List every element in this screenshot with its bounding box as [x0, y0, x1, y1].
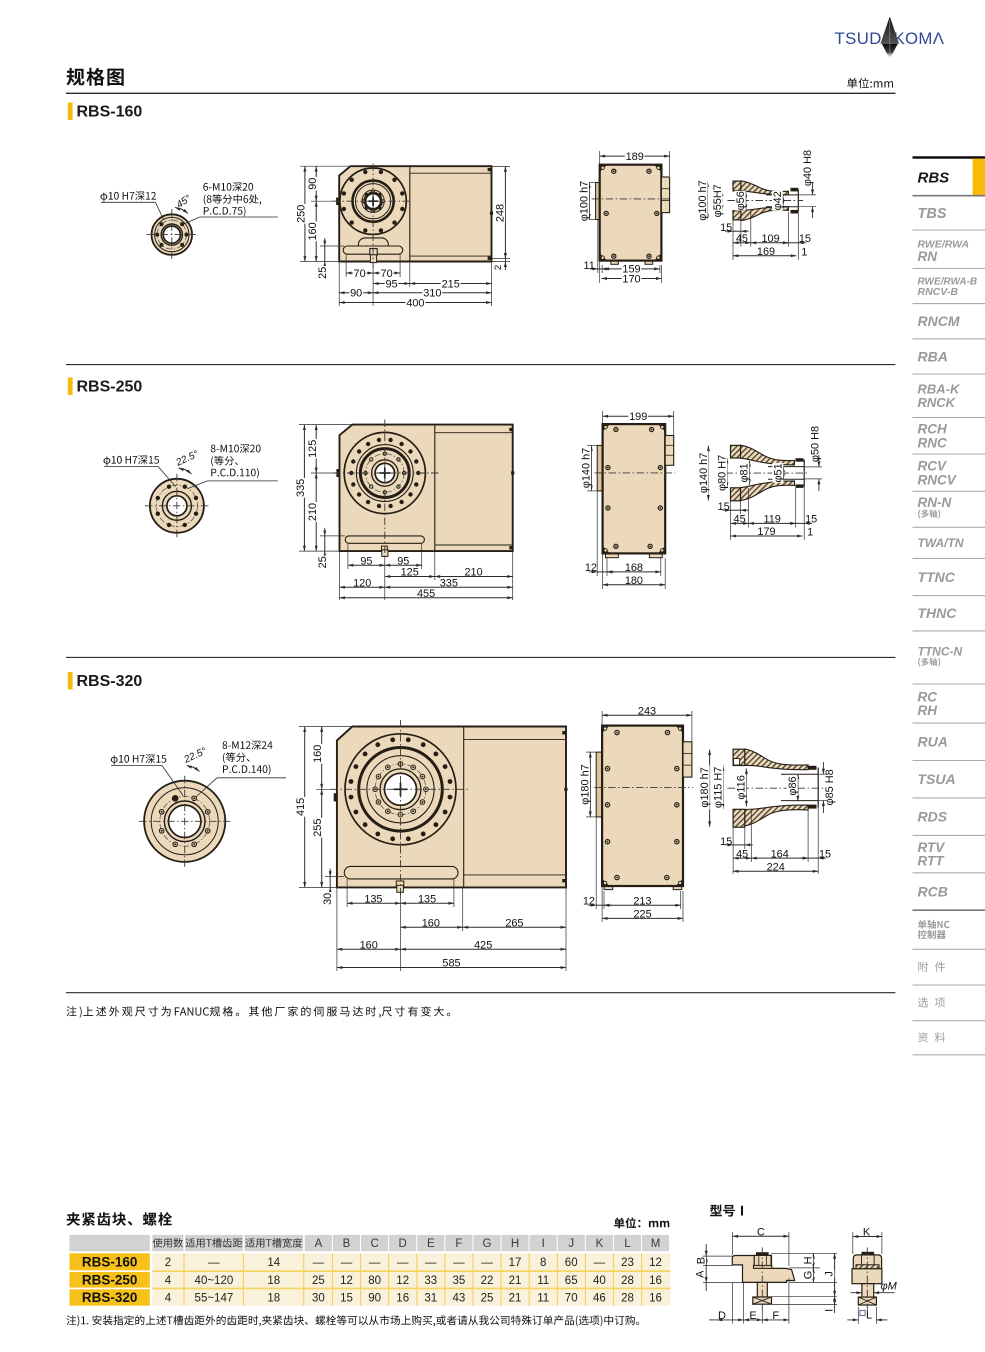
svg-text:RN-N: RN-N [918, 495, 952, 510]
svg-text:RBS: RBS [918, 169, 950, 186]
svg-text:70: 70 [354, 268, 366, 280]
svg-text:G: G [483, 1238, 492, 1250]
svg-text:125: 125 [307, 440, 319, 458]
svg-text:31: 31 [424, 1293, 437, 1305]
svg-text:12: 12 [585, 562, 597, 574]
svg-text:TWA/TN: TWA/TN [918, 536, 964, 550]
svg-text:15: 15 [720, 222, 732, 234]
svg-text:65: 65 [565, 1275, 578, 1287]
svg-text:RNC: RNC [918, 435, 947, 450]
svg-text:L: L [866, 1309, 872, 1321]
svg-text:46: 46 [593, 1293, 606, 1305]
svg-text:210: 210 [307, 503, 319, 521]
svg-text:TBS: TBS [918, 206, 947, 222]
svg-text:RCH: RCH [918, 422, 947, 437]
svg-text:RBS-250: RBS-250 [77, 379, 143, 396]
svg-text:243: 243 [638, 706, 656, 718]
svg-text:22.5°: 22.5° [182, 746, 209, 766]
svg-text:45: 45 [736, 233, 748, 245]
svg-text:125: 125 [401, 567, 419, 579]
svg-text:90: 90 [307, 178, 319, 190]
svg-text:RBA: RBA [918, 348, 948, 364]
svg-text:225: 225 [634, 909, 652, 921]
svg-text:RBS-160: RBS-160 [77, 104, 143, 121]
svg-text:—: — [208, 1257, 220, 1269]
svg-text:21: 21 [509, 1293, 522, 1305]
svg-text:160: 160 [307, 222, 319, 240]
svg-text:16: 16 [649, 1275, 662, 1287]
svg-text:J: J [824, 1271, 836, 1277]
svg-text:—: — [369, 1257, 381, 1269]
svg-text:335: 335 [440, 578, 458, 590]
svg-text:21: 21 [509, 1275, 522, 1287]
svg-text:TTNC-N: TTNC-N [918, 644, 963, 658]
svg-text:265: 265 [505, 917, 523, 929]
svg-text:RTT: RTT [918, 854, 946, 869]
svg-text:—: — [594, 1257, 606, 1269]
svg-text:φ55H7: φ55H7 [712, 184, 724, 217]
svg-text:11: 11 [537, 1293, 549, 1305]
svg-text:11: 11 [584, 260, 595, 272]
svg-text:168: 168 [625, 562, 643, 574]
svg-text:455: 455 [417, 588, 435, 600]
svg-text:K: K [596, 1238, 604, 1250]
svg-text:40~120: 40~120 [195, 1275, 234, 1287]
svg-text:RBS-320: RBS-320 [82, 1290, 138, 1305]
svg-text:RDS: RDS [918, 809, 948, 825]
svg-text:1: 1 [801, 247, 807, 259]
svg-text:180: 180 [625, 575, 643, 587]
svg-text:A: A [315, 1238, 323, 1250]
svg-text:95: 95 [360, 556, 372, 568]
svg-text:23: 23 [621, 1257, 634, 1269]
svg-text:—: — [453, 1257, 465, 1269]
svg-text:KOMΛ: KOMΛ [894, 29, 945, 48]
svg-text:RN: RN [918, 249, 938, 264]
svg-text:H: H [511, 1238, 519, 1250]
svg-text:TSUD: TSUD [835, 29, 882, 48]
svg-text:15: 15 [819, 849, 831, 861]
svg-text:40: 40 [593, 1275, 606, 1287]
svg-text:B: B [343, 1238, 351, 1250]
svg-text:80: 80 [368, 1275, 381, 1287]
svg-text:12: 12 [340, 1275, 353, 1287]
svg-text:RUA: RUA [918, 734, 948, 750]
svg-text:30: 30 [322, 893, 334, 905]
svg-text:45: 45 [734, 514, 746, 526]
svg-text:16: 16 [396, 1293, 409, 1305]
svg-text:THNC: THNC [918, 605, 958, 621]
svg-text:RNCV-B: RNCV-B [918, 286, 959, 298]
svg-text:RCB: RCB [918, 883, 948, 899]
svg-text:109: 109 [762, 233, 780, 245]
svg-text:415: 415 [295, 798, 307, 816]
svg-text:585: 585 [442, 958, 460, 970]
svg-text:B: B [695, 1257, 707, 1264]
svg-text:A: A [695, 1270, 707, 1278]
svg-text:φ86: φ86 [787, 776, 799, 795]
svg-text:1: 1 [807, 527, 813, 539]
svg-text:70: 70 [565, 1293, 578, 1305]
svg-text:E: E [749, 1310, 756, 1322]
svg-text:25: 25 [481, 1293, 494, 1305]
svg-text:35: 35 [453, 1275, 466, 1287]
svg-text:RBS-320: RBS-320 [77, 673, 143, 690]
svg-text:400: 400 [406, 297, 424, 309]
svg-text:43: 43 [453, 1293, 466, 1305]
svg-text:φ42: φ42 [772, 191, 784, 210]
svg-text:25: 25 [317, 267, 329, 279]
svg-text:I: I [824, 1309, 836, 1312]
svg-text:55~147: 55~147 [195, 1293, 234, 1305]
svg-text:335: 335 [295, 479, 307, 497]
svg-text:90: 90 [368, 1293, 381, 1305]
svg-text:TSUA: TSUA [918, 771, 956, 787]
svg-text:φ56: φ56 [735, 191, 747, 210]
svg-text:C: C [370, 1238, 378, 1250]
svg-text:φ115 H7: φ115 H7 [712, 767, 724, 808]
svg-text:14: 14 [267, 1257, 280, 1269]
svg-text:—: — [341, 1257, 353, 1269]
svg-text:179: 179 [757, 526, 775, 538]
svg-text:22: 22 [481, 1275, 494, 1287]
svg-text:φ116: φ116 [736, 775, 748, 799]
svg-text:17: 17 [509, 1257, 522, 1269]
svg-text:RCV: RCV [918, 459, 947, 474]
svg-text:J: J [568, 1238, 574, 1250]
svg-text:φM: φM [881, 1281, 898, 1293]
svg-text:G: G [803, 1271, 815, 1280]
svg-text:120: 120 [353, 578, 371, 590]
svg-text:—: — [425, 1257, 437, 1269]
svg-text:164: 164 [771, 848, 789, 860]
svg-text:119: 119 [764, 514, 781, 526]
svg-text:—: — [313, 1257, 325, 1269]
svg-text:95: 95 [385, 278, 397, 290]
svg-text:12: 12 [396, 1275, 409, 1287]
svg-text:135: 135 [418, 894, 436, 906]
svg-text:213: 213 [633, 895, 651, 907]
svg-text:φ80 H7: φ80 H7 [716, 455, 728, 491]
svg-text:φ100 h7: φ100 h7 [578, 181, 590, 221]
svg-text:170: 170 [622, 273, 640, 285]
svg-text:I: I [542, 1238, 545, 1250]
svg-text:95: 95 [397, 556, 409, 568]
svg-text:RC: RC [918, 689, 938, 704]
svg-text:φ40 H8: φ40 H8 [802, 150, 814, 186]
svg-text:RNCM: RNCM [918, 313, 960, 329]
svg-text:D: D [718, 1310, 726, 1322]
svg-text:2: 2 [165, 1257, 171, 1269]
svg-text:310: 310 [423, 288, 441, 300]
svg-text:RH: RH [918, 703, 938, 718]
svg-text:15: 15 [805, 514, 817, 526]
svg-text:L: L [624, 1238, 631, 1250]
svg-text:160: 160 [312, 745, 324, 763]
svg-text:K: K [863, 1227, 871, 1239]
svg-text:RNCV: RNCV [918, 472, 957, 487]
svg-text:φ50 H8: φ50 H8 [809, 426, 821, 462]
svg-text:RTV: RTV [918, 840, 946, 855]
svg-text:60: 60 [565, 1257, 578, 1269]
svg-text:F: F [772, 1310, 779, 1322]
svg-text:TTNC: TTNC [918, 569, 956, 585]
svg-text:248: 248 [495, 204, 507, 222]
svg-text:250: 250 [296, 205, 308, 223]
svg-text:28: 28 [621, 1293, 634, 1305]
svg-text:25: 25 [312, 1275, 325, 1287]
svg-text:2: 2 [493, 265, 504, 270]
svg-text:25: 25 [317, 556, 329, 568]
svg-text:90: 90 [350, 288, 362, 300]
svg-text:8: 8 [540, 1257, 546, 1269]
svg-text:φ180 h7: φ180 h7 [579, 764, 591, 804]
svg-text:φ85 H8: φ85 H8 [824, 769, 836, 805]
svg-text:15: 15 [718, 501, 730, 513]
svg-text:φ100 h7: φ100 h7 [697, 180, 709, 220]
svg-text:255: 255 [312, 819, 324, 837]
svg-text:33: 33 [424, 1275, 437, 1287]
svg-text:12: 12 [649, 1257, 662, 1269]
svg-text:E: E [427, 1238, 435, 1250]
svg-text:224: 224 [767, 862, 785, 874]
svg-text:—: — [397, 1257, 409, 1269]
svg-text:φ140 h7: φ140 h7 [580, 448, 592, 488]
svg-text:28: 28 [621, 1275, 634, 1287]
svg-text:RNCK: RNCK [918, 395, 957, 410]
svg-text:F: F [455, 1238, 462, 1250]
svg-text:4: 4 [165, 1275, 172, 1287]
svg-text:215: 215 [442, 278, 460, 290]
svg-text:189: 189 [626, 151, 644, 163]
svg-text:D: D [399, 1238, 407, 1250]
svg-text:135: 135 [364, 894, 382, 906]
svg-text:18: 18 [267, 1293, 280, 1305]
svg-text:199: 199 [629, 411, 647, 423]
svg-text:RBS-160: RBS-160 [82, 1254, 138, 1269]
svg-text:RBS-250: RBS-250 [82, 1272, 138, 1287]
svg-text:—: — [481, 1257, 493, 1269]
svg-text:H: H [802, 1256, 814, 1264]
svg-text:φ81: φ81 [739, 463, 751, 482]
svg-text:15: 15 [340, 1293, 353, 1305]
svg-text:169: 169 [757, 246, 775, 258]
svg-text:30: 30 [312, 1293, 325, 1305]
svg-text:15: 15 [799, 233, 811, 245]
svg-text:22.5°: 22.5° [174, 449, 201, 469]
svg-text:φ180 h7: φ180 h7 [699, 767, 711, 807]
svg-text:16: 16 [649, 1293, 662, 1305]
svg-text:18: 18 [267, 1275, 280, 1287]
svg-text:4: 4 [165, 1293, 172, 1305]
svg-text:425: 425 [474, 939, 492, 951]
svg-text:45: 45 [736, 848, 748, 860]
svg-text:φ51: φ51 [773, 463, 785, 482]
svg-text:12: 12 [583, 896, 595, 908]
svg-text:C: C [757, 1226, 765, 1238]
svg-text:φ140 h7: φ140 h7 [698, 453, 710, 493]
svg-text:210: 210 [465, 567, 483, 579]
svg-text:160: 160 [360, 939, 378, 951]
svg-text:15: 15 [720, 836, 732, 848]
svg-text:M: M [651, 1238, 661, 1250]
svg-text:160: 160 [422, 917, 440, 929]
svg-text:11: 11 [537, 1275, 549, 1287]
